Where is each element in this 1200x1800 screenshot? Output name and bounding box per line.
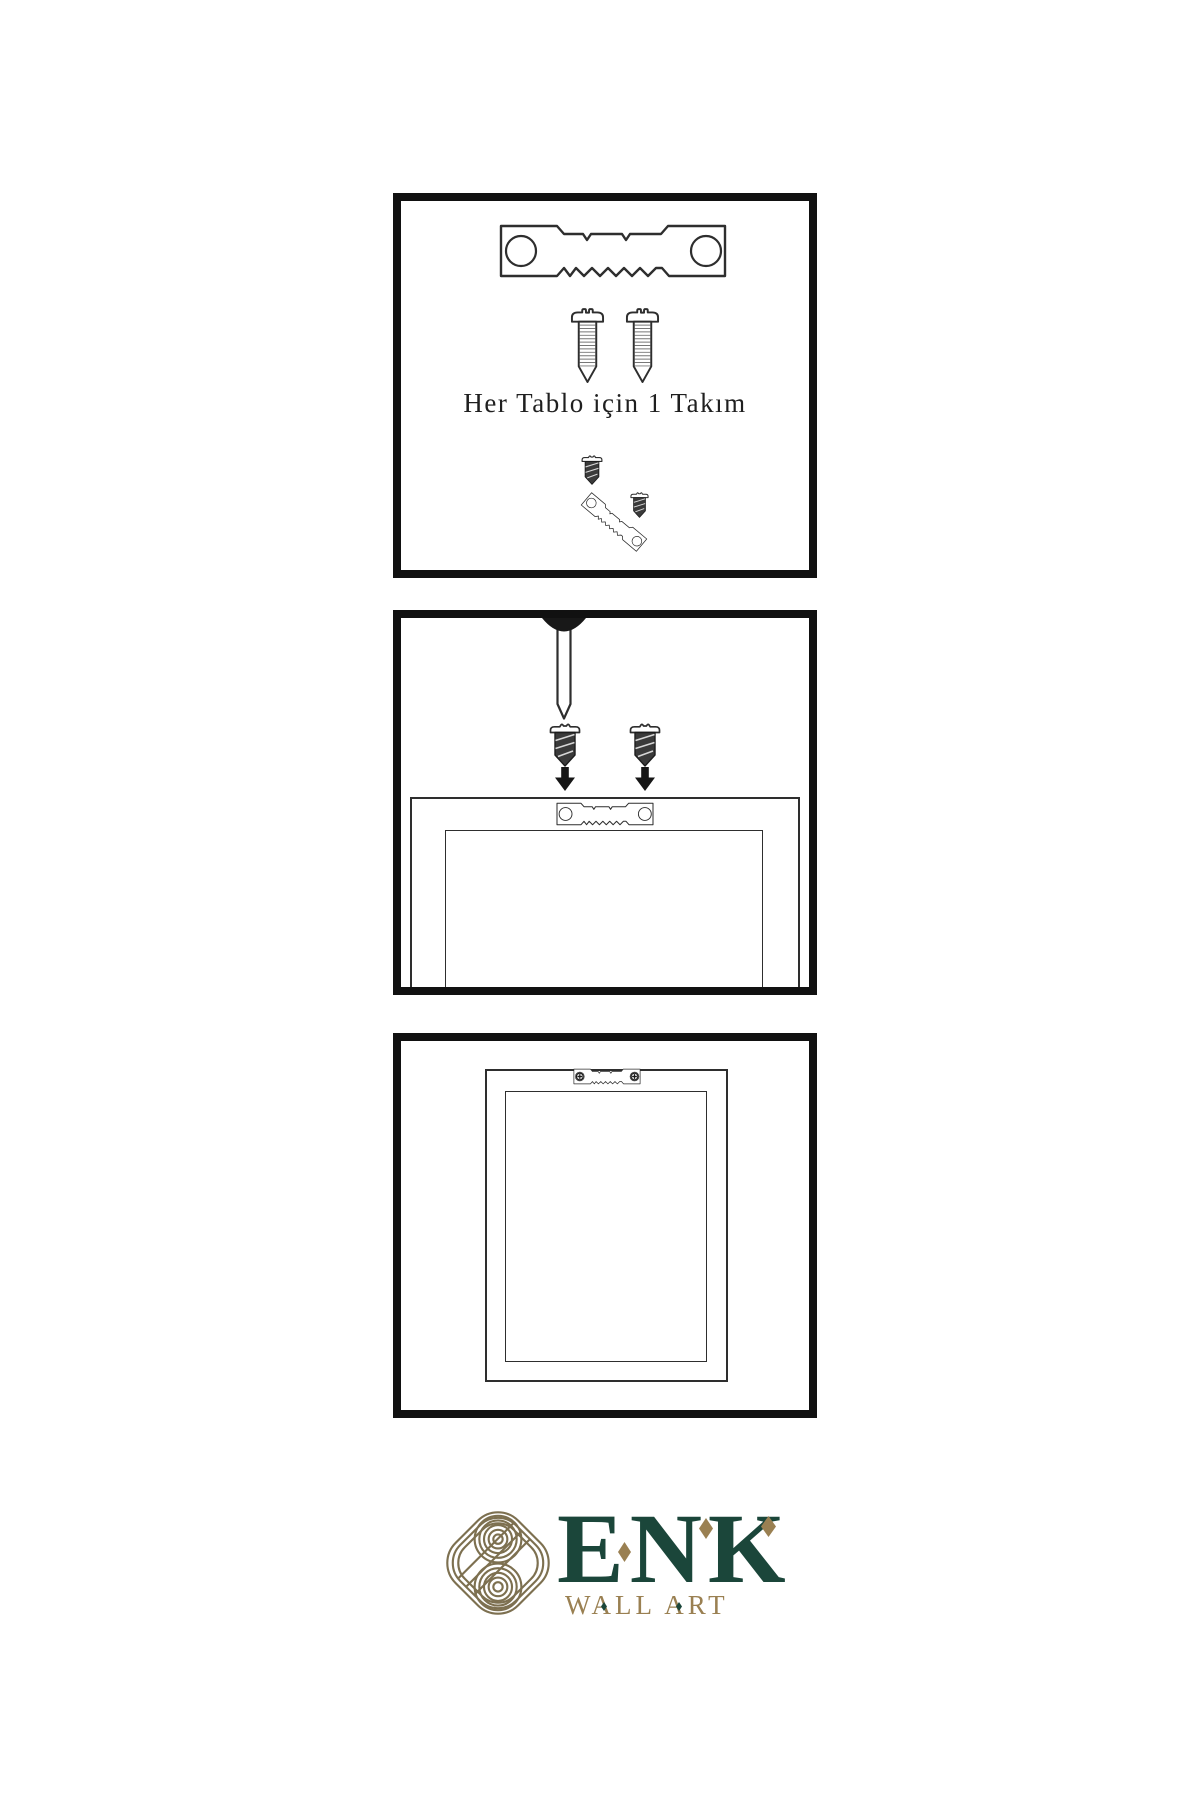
dark-screw-icon: [629, 723, 661, 767]
sawtooth-hanger-icon: [498, 223, 728, 279]
arrow-down-icon: [635, 767, 655, 791]
panel-mounting-step: [393, 610, 817, 995]
dark-screw-icon: [549, 723, 581, 767]
brand-logo: [437, 1498, 559, 1628]
brand-subtitle: WALL ART: [565, 1592, 729, 1619]
frame-back-inner-edge: [445, 830, 763, 995]
frame-back-inner-edge: [505, 1091, 707, 1362]
sawtooth-hanger-icon: [555, 802, 655, 826]
instruction-sheet: Her Tablo için 1 Takım: [0, 0, 1200, 1800]
kit-caption: Her Tablo için 1 Takım: [401, 390, 809, 417]
arrow-down-icon: [555, 767, 575, 791]
small-dark-screw-icon: [581, 455, 603, 485]
screw-icon: [625, 308, 660, 384]
screw-icon: [570, 308, 605, 384]
knot-icon: [437, 1498, 559, 1628]
brand-name: ENK: [557, 1499, 792, 1599]
panel-hardware-kit: Her Tablo için 1 Takım: [393, 193, 817, 578]
small-dark-screw-icon: [630, 492, 649, 518]
mounted-sawtooth-hanger-icon: [573, 1068, 641, 1085]
panel-hanging-step: [393, 1033, 817, 1418]
wall-nail-icon: [542, 618, 586, 720]
